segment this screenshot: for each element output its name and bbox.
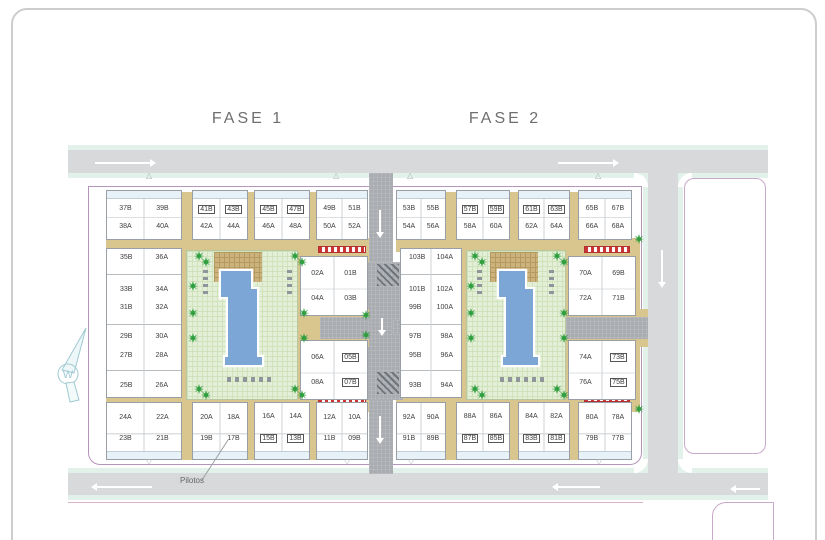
site-plan: FASE 1 FASE 2 bbox=[0, 0, 825, 540]
page-frame bbox=[11, 8, 817, 540]
